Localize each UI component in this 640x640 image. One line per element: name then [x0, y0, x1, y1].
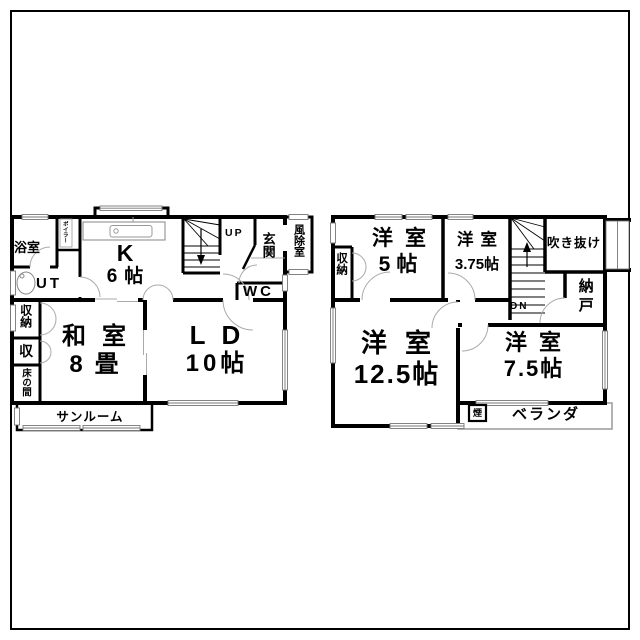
boiler-label: ボイラー: [61, 221, 67, 246]
ld-size-label: 10帖: [165, 351, 265, 376]
floor1-plan: 浴室 ボイラー UT K 6帖 UP 玄関 風除室 WC 収納 収 床の間 和室…: [10, 205, 322, 440]
sunroom-label: サンルーム: [35, 411, 145, 424]
room5-size-label: 5帖: [360, 254, 436, 276]
washitsu-size-label: 8畳: [46, 352, 142, 377]
kitchen-faucet: [114, 229, 118, 233]
tokonoma-label: 床の間: [20, 368, 30, 400]
closet2-label: 収: [14, 344, 38, 359]
room5-label: 洋室: [360, 228, 436, 250]
room75-size-label: 7.5帖: [492, 357, 574, 380]
stairs-up-label: UP: [225, 228, 244, 239]
room375-label: 洋室: [446, 232, 508, 249]
kitchen-label: K: [95, 241, 155, 265]
closet-label: 収納: [335, 252, 347, 296]
void-window-bump: [605, 218, 631, 272]
floorplan-page: 浴室 ボイラー UT K 6帖 UP 玄関 風除室 WC 収納 収 床の間 和室…: [0, 0, 640, 640]
chimney-label: 煙: [469, 409, 486, 418]
room375-size-label: 3.75帖: [442, 257, 512, 273]
closet1-label: 収納: [19, 304, 32, 336]
veranda-label: ベランダ: [490, 407, 602, 423]
void-label: 吹き抜け: [542, 237, 606, 250]
room75-label: 洋室: [492, 331, 574, 354]
room125-size-label: 12.5帖: [338, 361, 454, 388]
kitchen-size-label: 6帖: [88, 267, 162, 287]
genkan-opening: [281, 225, 289, 251]
floor2-plan: 収納 洋室 5帖 洋室 3.75帖 吹き抜け DN 納戸 洋室 12.5帖 洋室…: [330, 205, 635, 437]
ld-label: LD: [165, 322, 265, 349]
entrance-label: 玄関: [261, 232, 275, 266]
storeroom-label: 納戸: [577, 278, 593, 324]
wc-label: WC: [243, 284, 274, 300]
stairs-dn-label: DN: [510, 302, 528, 313]
ut-label: UT: [36, 276, 62, 292]
bath-label: 浴室: [14, 241, 56, 255]
room125-label: 洋室: [338, 330, 454, 357]
washitsu-label: 和室: [46, 324, 142, 349]
windbreak-label: 風除室: [292, 224, 304, 264]
